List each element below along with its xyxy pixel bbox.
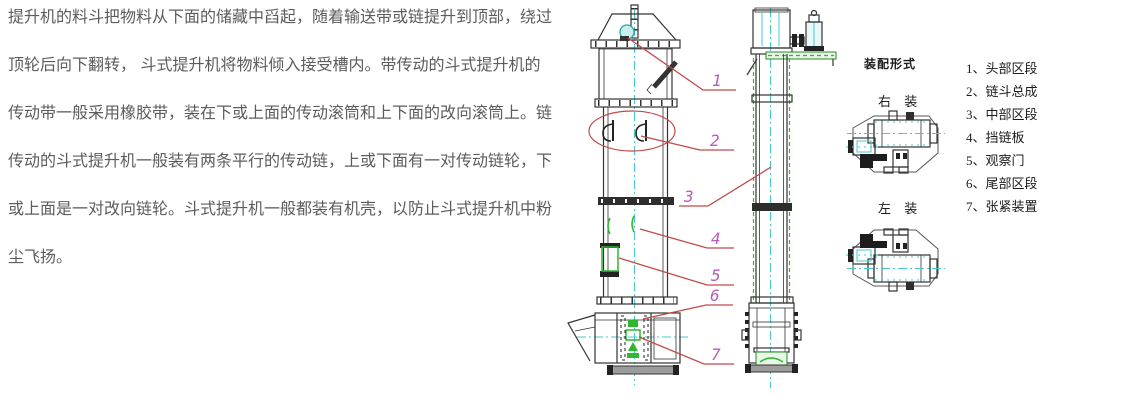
legend-item: 4、挡链板	[966, 126, 1038, 149]
legend-item: 3、中部区段	[966, 103, 1038, 126]
callout-1: 1	[712, 71, 722, 90]
description-paragraph: 提升机的料斗把物料从下面的储藏中舀起，随着输送带或链提升到顶部，绕过 顶轮后向下…	[8, 0, 564, 282]
callout-6: 6	[710, 286, 720, 305]
callout-5: 5	[711, 266, 721, 285]
drive-motor	[790, 11, 824, 52]
paragraph-line: 尘飞扬。	[8, 234, 564, 282]
parts-legend: 1、头部区段 2、链斗总成 3、中部区段 4、挡链板 5、观察门 6、尾部区段 …	[966, 57, 1038, 218]
front-view-drawing	[568, 5, 690, 385]
paragraph-line: 提升机的料斗把物料从下面的储藏中舀起，随着输送带或链提升到顶部，绕过	[8, 0, 564, 42]
elevator-technical-drawing: 1 2 3 4 5 6 7 装配形式 右 装 左 装	[560, 0, 960, 406]
callout-7: 7	[711, 345, 721, 364]
right-mount-label: 右 装	[878, 94, 922, 109]
side-view-drawing	[742, 8, 836, 388]
callout-4: 4	[711, 229, 721, 248]
left-mount-label: 左 装	[878, 201, 922, 216]
paragraph-line: 传动带一般采用橡胶带，装在下或上面的传动滚筒和上下面的改向滚筒上。链	[8, 90, 564, 138]
legend-item: 2、链斗总成	[966, 80, 1038, 103]
legend-item: 6、尾部区段	[966, 172, 1038, 195]
legend-item: 5、观察门	[966, 149, 1038, 172]
assembly-title: 装配形式	[863, 56, 916, 71]
left-mount-drawing	[846, 229, 945, 291]
legend-item: 7、张紧装置	[966, 195, 1038, 218]
legend-item: 1、头部区段	[966, 57, 1038, 80]
chain-bucket-detail	[603, 120, 646, 141]
assembly-configurations: 装配形式 右 装 左 装	[846, 56, 945, 291]
callout-2: 2	[710, 131, 720, 150]
right-mount-drawing	[846, 111, 945, 173]
bucket-elevator-page: 提升机的料斗把物料从下面的储藏中舀起，随着输送带或链提升到顶部，绕过 顶轮后向下…	[0, 0, 1128, 406]
paragraph-line: 顶轮后向下翻转， 斗式提升机将物料倾入接受槽内。带传动的斗式提升机的	[8, 42, 564, 90]
callout-3: 3	[683, 187, 694, 206]
paragraph-line: 传动的斗式提升机一般装有两条平行的传动链，上或下面有一对传动链轮，下	[8, 138, 564, 186]
paragraph-line: 或上面是一对改向链轮。斗式提升机一般都装有机壳，以防止斗式提升机中粉	[8, 186, 564, 234]
